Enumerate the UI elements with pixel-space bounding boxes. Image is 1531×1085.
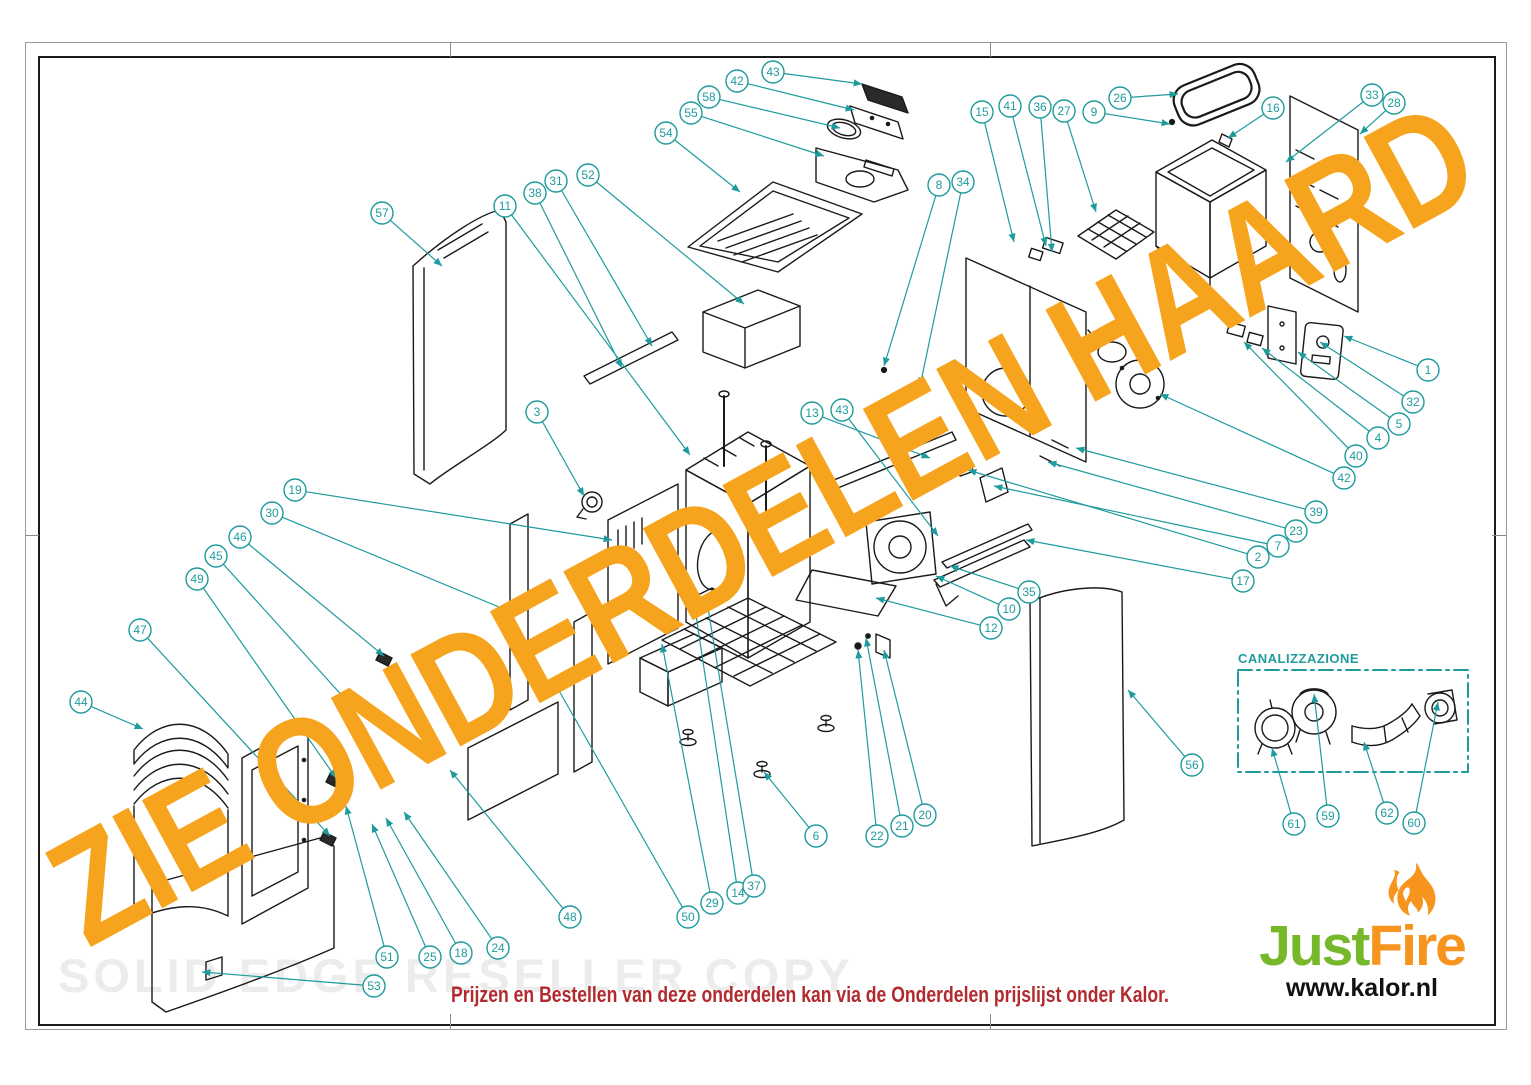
svg-text:38: 38: [528, 186, 542, 200]
svg-text:42: 42: [730, 74, 744, 88]
callout-17: 17: [1026, 540, 1254, 592]
svg-text:31: 31: [549, 174, 563, 188]
brand-logo: JustFire www.kalor.nl: [1248, 852, 1476, 1002]
svg-text:43: 43: [766, 65, 780, 79]
svg-text:58: 58: [702, 90, 716, 104]
callout-6: 6: [764, 772, 827, 847]
brand-url: www.kalor.nl: [1248, 974, 1476, 1003]
svg-text:9: 9: [1091, 105, 1098, 119]
svg-text:52: 52: [581, 168, 595, 182]
svg-text:4: 4: [1375, 431, 1382, 445]
callout-44: 44: [70, 691, 143, 729]
svg-text:10: 10: [1002, 602, 1016, 616]
svg-text:42: 42: [1337, 471, 1351, 485]
drawing-sheet: SOLID EDGE RESELLER COPY: [0, 0, 1531, 1085]
callout-62: 62: [1364, 742, 1398, 824]
callout-29: 29: [662, 644, 723, 914]
svg-text:60: 60: [1407, 816, 1421, 830]
svg-text:12: 12: [984, 621, 998, 635]
callout-61: 61: [1272, 748, 1305, 835]
svg-text:2: 2: [1255, 550, 1262, 564]
svg-text:59: 59: [1321, 809, 1335, 823]
callout-48: 48: [450, 770, 581, 928]
svg-text:21: 21: [895, 819, 909, 833]
callout-42: 42: [1160, 394, 1355, 489]
svg-text:36: 36: [1033, 100, 1047, 114]
svg-text:49: 49: [190, 572, 204, 586]
svg-text:18: 18: [454, 946, 468, 960]
callout-4: 4: [1262, 348, 1389, 449]
svg-text:26: 26: [1113, 91, 1127, 105]
svg-text:15: 15: [975, 105, 989, 119]
callout-56: 56: [1128, 690, 1203, 776]
svg-text:7: 7: [1275, 539, 1282, 553]
callout-23: 23: [1048, 462, 1307, 542]
callout-12: 12: [876, 598, 1002, 639]
svg-text:39: 39: [1309, 505, 1323, 519]
callout-22: 22: [858, 650, 888, 847]
svg-text:34: 34: [956, 175, 970, 189]
svg-text:23: 23: [1289, 524, 1303, 538]
svg-text:54: 54: [659, 126, 673, 140]
svg-text:29: 29: [705, 896, 719, 910]
svg-text:32: 32: [1406, 395, 1420, 409]
callout-53: 53: [202, 972, 385, 997]
svg-text:46: 46: [233, 530, 247, 544]
footer-note: Prijzen en Bestellen van deze onderdelen…: [361, 982, 1258, 1008]
callout-15: 15: [971, 101, 1014, 242]
svg-text:11: 11: [499, 199, 512, 213]
brand-name-just: Just: [1259, 914, 1368, 978]
callout-42: 42: [726, 70, 854, 110]
svg-text:25: 25: [423, 950, 437, 964]
callout-52: 52: [577, 164, 744, 304]
callout-10: 10: [936, 576, 1020, 620]
svg-text:47: 47: [133, 623, 147, 637]
brand-name: JustFire: [1248, 918, 1476, 975]
callout-35: 35: [950, 566, 1040, 603]
svg-text:57: 57: [375, 206, 389, 220]
svg-text:45: 45: [209, 549, 223, 563]
callout-59: 59: [1314, 694, 1339, 827]
callout-57: 57: [371, 202, 442, 266]
callout-3: 3: [526, 401, 584, 496]
svg-text:5: 5: [1396, 417, 1403, 431]
svg-text:17: 17: [1236, 574, 1250, 588]
callout-19: 19: [284, 479, 612, 540]
callout-54: 54: [655, 122, 740, 192]
svg-text:37: 37: [747, 879, 761, 893]
svg-text:56: 56: [1185, 758, 1199, 772]
svg-text:30: 30: [265, 506, 279, 520]
callout-1: 1: [1344, 336, 1439, 381]
svg-text:55: 55: [684, 106, 698, 120]
svg-text:20: 20: [918, 808, 932, 822]
callout-20: 20: [884, 650, 936, 826]
svg-text:51: 51: [380, 950, 394, 964]
callout-60: 60: [1403, 702, 1438, 834]
callout-24: 24: [404, 812, 509, 959]
svg-text:8: 8: [936, 178, 943, 192]
svg-text:50: 50: [681, 910, 695, 924]
svg-text:35: 35: [1022, 585, 1036, 599]
brand-name-fire: Fire: [1368, 914, 1465, 978]
svg-text:16: 16: [1266, 101, 1280, 115]
callout-43: 43: [762, 61, 862, 84]
svg-text:48: 48: [563, 910, 577, 924]
callout-16: 16: [1228, 97, 1284, 138]
svg-text:1: 1: [1425, 363, 1432, 377]
svg-text:3: 3: [534, 405, 541, 419]
svg-text:24: 24: [491, 941, 505, 955]
svg-text:61: 61: [1287, 817, 1301, 831]
callout-36: 36: [1029, 96, 1052, 252]
callout-11: 11: [494, 195, 690, 455]
callout-55: 55: [680, 102, 824, 156]
svg-text:40: 40: [1349, 449, 1363, 463]
svg-text:62: 62: [1380, 806, 1394, 820]
svg-text:6: 6: [813, 829, 820, 843]
svg-text:27: 27: [1057, 104, 1071, 118]
svg-text:41: 41: [1003, 99, 1017, 113]
svg-text:22: 22: [870, 829, 884, 843]
svg-text:19: 19: [288, 483, 302, 497]
footer-note-text: Prijzen en Bestellen van deze onderdelen…: [451, 982, 1169, 1008]
callout-46: 46: [229, 526, 384, 656]
callout-32: 32: [1320, 342, 1424, 413]
svg-text:44: 44: [74, 695, 88, 709]
callout-26: 26: [1109, 87, 1178, 109]
